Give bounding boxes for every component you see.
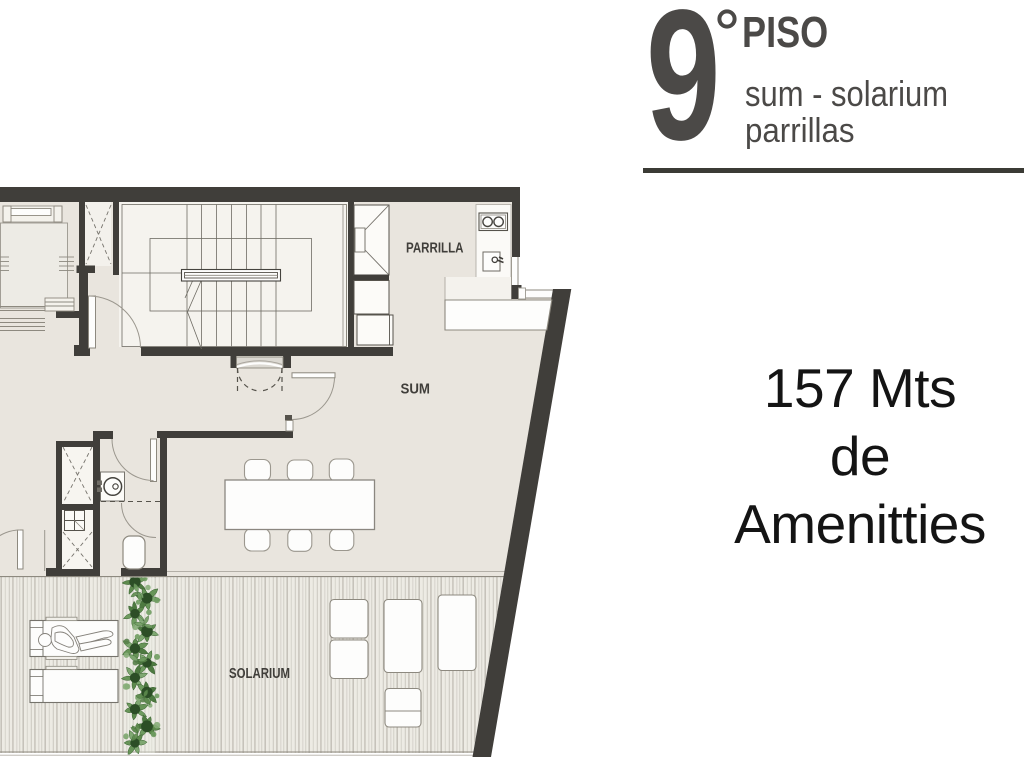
svg-text:PARRILLA: PARRILLA	[406, 241, 464, 257]
svg-text:SOLARIUM: SOLARIUM	[229, 666, 290, 682]
svg-text:SUM: SUM	[401, 382, 431, 398]
